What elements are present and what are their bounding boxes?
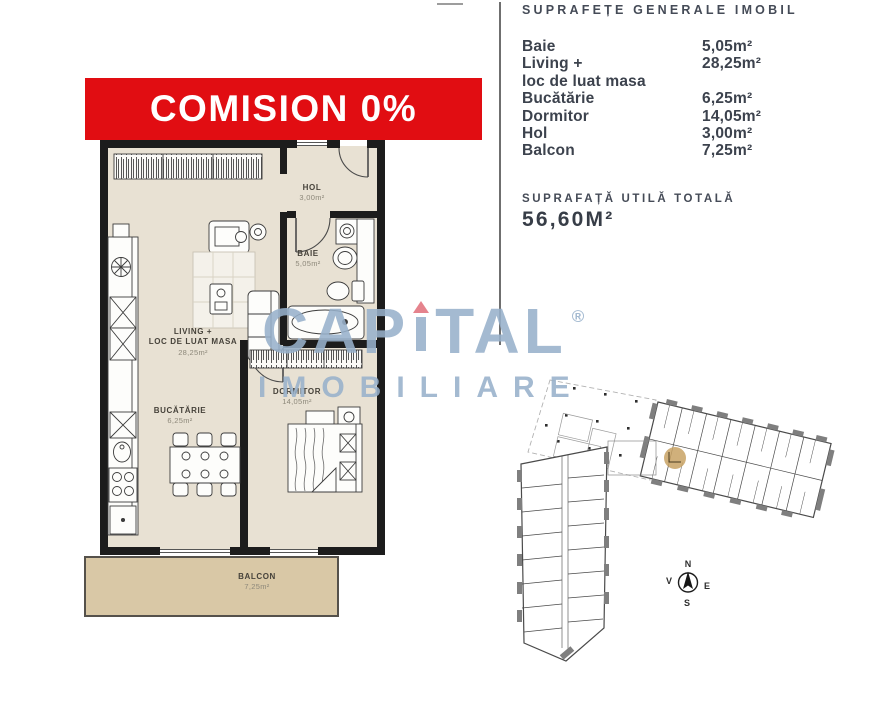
row-value: 6,25m² bbox=[702, 90, 752, 107]
table-row: Hol 3,00m² bbox=[522, 125, 867, 142]
area-table: Baie 5,05m² Living + 28,25m² loc de luat… bbox=[522, 38, 867, 160]
room-label-dormitor: DORMITOR 14,05m² bbox=[247, 387, 347, 407]
total-area-label: SUPRAFAȚĂ UTILĂ TOTALĂ bbox=[522, 193, 867, 205]
washing-machine bbox=[336, 219, 358, 244]
room-label-balcon: BALCON 7,25m² bbox=[197, 572, 317, 592]
compass-e: E bbox=[704, 581, 710, 591]
dining-table bbox=[170, 447, 240, 483]
table-row: Balcon 7,25m² bbox=[522, 142, 867, 159]
listing-image: N S E V COMISION 0% HOL 3,00m² BAIE 5,05… bbox=[0, 0, 874, 720]
cabinet-x1 bbox=[110, 297, 136, 328]
table-row: Baie 5,05m² bbox=[522, 38, 867, 55]
plant bbox=[250, 224, 266, 240]
commission-banner: COMISION 0% bbox=[85, 78, 482, 140]
shelf-box bbox=[113, 224, 129, 237]
compass-v: V bbox=[666, 576, 672, 586]
compass: N S E V bbox=[666, 559, 710, 608]
room-area: 7,25m² bbox=[197, 582, 317, 592]
apartment-plan bbox=[85, 140, 385, 616]
room-label-hol: HOL 3,00m² bbox=[282, 183, 342, 203]
kitchen-sink bbox=[114, 442, 131, 462]
row-label: Baie bbox=[522, 38, 702, 55]
toilet bbox=[327, 281, 364, 301]
compass-s: S bbox=[684, 598, 690, 608]
row-label: Balcon bbox=[522, 142, 702, 159]
room-area: 14,05m² bbox=[247, 397, 347, 407]
room-label-bucatarie: BUCĂTĂRIE 6,25m² bbox=[125, 406, 235, 426]
total-area-value: 56,60M² bbox=[522, 208, 867, 232]
drawer-unit bbox=[110, 506, 136, 534]
site-plan: N S E V bbox=[517, 380, 837, 661]
room-area: 6,25m² bbox=[125, 416, 235, 426]
room-name: BAIE bbox=[278, 249, 338, 259]
row-label: Living + bbox=[522, 55, 702, 72]
room-area: 28,25m² bbox=[133, 348, 253, 358]
commission-banner-text: COMISION 0% bbox=[150, 88, 417, 130]
bathtub bbox=[288, 306, 364, 339]
room-name: BUCĂTĂRIE bbox=[125, 406, 235, 416]
unit-highlight bbox=[664, 447, 686, 469]
room-label-living: LIVING + LOC DE LUAT MASA 28,25m² bbox=[133, 327, 253, 358]
table-row: Living + 28,25m² bbox=[522, 55, 867, 72]
room-area: 5,05m² bbox=[278, 259, 338, 269]
area-panel: SUPRAFEȚE GENERALE IMOBIL Baie 5,05m² Li… bbox=[522, 3, 867, 232]
room-name: BALCON bbox=[197, 572, 317, 582]
room-label-baie: BAIE 5,05m² bbox=[278, 249, 338, 269]
row-value: 14,05m² bbox=[702, 108, 761, 125]
compass-n: N bbox=[685, 559, 692, 569]
table-row: loc de luat masa bbox=[522, 73, 867, 90]
area-panel-title: SUPRAFEȚE GENERALE IMOBIL bbox=[522, 3, 867, 17]
crop-artifact-line bbox=[437, 3, 463, 5]
stove bbox=[109, 468, 137, 502]
row-label: Hol bbox=[522, 125, 702, 142]
row-label: loc de luat masa bbox=[522, 73, 702, 90]
row-value: 28,25m² bbox=[702, 55, 761, 72]
building-left-wing bbox=[517, 447, 609, 661]
bedroom-wardrobe bbox=[250, 350, 362, 368]
table-row: Dormitor 14,05m² bbox=[522, 108, 867, 125]
room-name: LIVING + bbox=[133, 327, 253, 337]
panel-divider bbox=[499, 2, 501, 345]
row-value: 7,25m² bbox=[702, 142, 752, 159]
kitchen-sink-top bbox=[112, 258, 131, 277]
row-label: Bucătărie bbox=[522, 90, 702, 107]
room-name-2: LOC DE LUAT MASA bbox=[133, 337, 253, 347]
row-value: 5,05m² bbox=[702, 38, 752, 55]
room-area: 3,00m² bbox=[282, 193, 342, 203]
coffee-table bbox=[210, 284, 232, 314]
bed bbox=[288, 424, 362, 492]
row-value: 3,00m² bbox=[702, 125, 752, 142]
wardrobe bbox=[114, 154, 262, 179]
armchair bbox=[209, 221, 249, 253]
room-name: HOL bbox=[282, 183, 342, 193]
room-name: DORMITOR bbox=[247, 387, 347, 397]
table-row: Bucătărie 6,25m² bbox=[522, 90, 867, 107]
row-label: Dormitor bbox=[522, 108, 702, 125]
